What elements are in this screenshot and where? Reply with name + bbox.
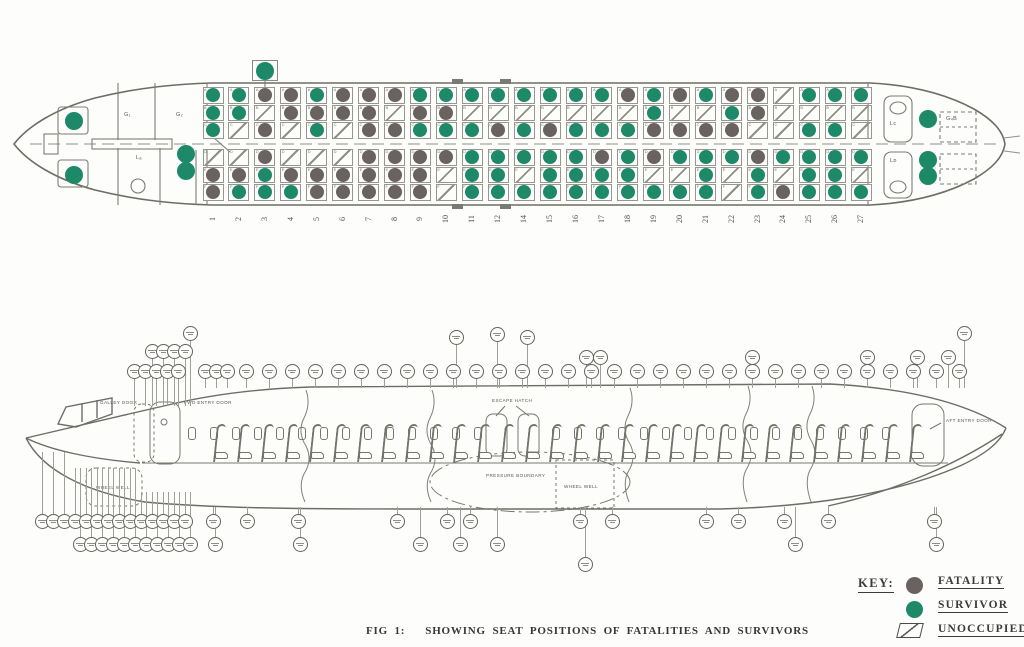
survivor-circle: [543, 168, 557, 182]
station-callout-circle: [814, 364, 829, 379]
seat-5F: F: [306, 184, 327, 201]
seat-8D: D: [384, 149, 405, 166]
row-number-20: 20: [675, 209, 685, 229]
seat-letter: B: [515, 105, 518, 110]
seat-27E: E: [851, 167, 872, 184]
seat-23E: E: [747, 167, 768, 184]
survivor-circle: [543, 150, 557, 164]
fwd-lav-toilet: [131, 179, 145, 193]
station-callout-circle: [929, 537, 944, 552]
survivor-circle: [751, 185, 765, 199]
callout-leader-line: [246, 379, 247, 388]
seat-3A: A: [254, 87, 275, 104]
callout-leader-line: [141, 492, 142, 514]
seat-letter: D: [593, 149, 596, 154]
survivor-circle: [206, 106, 220, 120]
callout-leader-line: [913, 379, 914, 388]
seat-letter: B: [282, 105, 285, 110]
seat-letter: E: [204, 167, 207, 172]
seat-2E: E: [228, 167, 249, 184]
seat-letter: C: [697, 122, 700, 127]
callout-leader-line: [179, 492, 180, 537]
fatality-circle: [751, 150, 765, 164]
station-callout-circle: [538, 364, 553, 379]
seat-letter: A: [204, 87, 207, 92]
seat-silhouette: [236, 424, 253, 463]
seat-1F: F: [203, 184, 224, 201]
station-callout-circle: [883, 364, 898, 379]
seat-letter: B: [386, 105, 389, 110]
seat-27B: B: [851, 105, 872, 122]
station-callout-circle: [490, 537, 505, 552]
seat-1D: D: [203, 149, 224, 166]
survivor-circle: [310, 88, 324, 102]
seat-letter: B: [749, 105, 752, 110]
station-callout-circle: [837, 364, 852, 379]
seat-26B: B: [825, 105, 846, 122]
survivor-circle: [491, 150, 505, 164]
seat-16D: D: [566, 149, 587, 166]
callout-leader-line: [828, 507, 829, 514]
fatality-circle: [388, 123, 402, 137]
station-callout-circle: [520, 330, 535, 345]
fatality-circle: [284, 168, 298, 182]
seat-letter: D: [800, 149, 803, 154]
aft-lav-left-toilet: [890, 102, 906, 114]
seat-letter: B: [437, 105, 440, 110]
callout-leader-line: [600, 365, 601, 388]
survivor-circle: [258, 185, 272, 199]
callout-leader-line: [190, 492, 191, 537]
seat-letter: A: [800, 87, 803, 92]
row-number-12: 12: [493, 209, 503, 229]
seat-silhouette: [740, 424, 757, 463]
callout-leader-line: [134, 379, 135, 406]
seat-letter: E: [308, 167, 311, 172]
seat-23B: B: [747, 105, 768, 122]
seat-silhouette: [212, 424, 229, 463]
survivor-circle: [258, 168, 272, 182]
survivor-circle: [284, 185, 298, 199]
seat-19A: A: [643, 87, 664, 104]
seat-letter: D: [749, 149, 752, 154]
callout-leader-line: [361, 379, 362, 388]
callout-leader-line: [784, 507, 785, 514]
seat-letter: D: [437, 149, 440, 154]
fatality-circle: [776, 185, 790, 199]
row-number-16: 16: [571, 209, 581, 229]
seat-8B: B: [384, 105, 405, 122]
seat-letter: C: [360, 122, 363, 127]
key-heading: KEY:: [858, 576, 894, 593]
seat-letter: A: [360, 87, 363, 92]
survivor-circle: [439, 123, 453, 137]
callout-leader-line: [936, 379, 937, 388]
survivor-circle: [621, 123, 635, 137]
fatality-circle: [751, 106, 765, 120]
fatality-circle: [336, 185, 350, 199]
seat-letter: E: [800, 167, 803, 172]
seat-letter: A: [437, 87, 440, 92]
fatality-circle: [388, 185, 402, 199]
seat-20D: D: [669, 149, 690, 166]
seat-7C: C: [358, 122, 379, 139]
survivor-circle: [802, 88, 816, 102]
station-callout-circle: [927, 514, 942, 529]
survivor-circle: [465, 150, 479, 164]
seat-2D: D: [228, 149, 249, 166]
seat-letter: F: [360, 184, 362, 189]
seat-16A: A: [566, 87, 587, 104]
aft-lav-right-toilet: [890, 181, 906, 193]
seat-26D: D: [825, 149, 846, 166]
seat-letter: B: [800, 105, 803, 110]
survivor-circle: [310, 123, 324, 137]
seat-4D: D: [280, 149, 301, 166]
callout-leader-line: [298, 507, 299, 514]
seat-letter: E: [334, 167, 337, 172]
seat-letter: E: [411, 167, 414, 172]
station-callout-circle: [821, 514, 836, 529]
seat-12B: B: [488, 105, 509, 122]
seat-24C: C: [773, 122, 794, 139]
survivor-circle: [802, 150, 816, 164]
seat-silhouette: [644, 424, 661, 463]
callout-leader-line: [185, 492, 186, 514]
cabin-window: [188, 427, 196, 440]
seat-letter: D: [282, 149, 285, 154]
seat-8C: C: [384, 122, 405, 139]
seat-10C: C: [436, 122, 457, 139]
survivor-circle: [465, 88, 479, 102]
seat-letter: A: [619, 87, 622, 92]
seat-letter: B: [541, 105, 544, 110]
seat-letter: C: [567, 122, 570, 127]
seat-letter: D: [515, 149, 518, 154]
survivor-circle: [465, 185, 479, 199]
seat-silhouette: [500, 424, 517, 463]
seat-letter: D: [489, 149, 492, 154]
seat-23F: F: [747, 184, 768, 201]
callout-leader-line: [130, 468, 131, 514]
station-callout-circle: [605, 514, 620, 529]
row-number-9: 9: [415, 209, 425, 229]
seat-letter: F: [437, 184, 439, 189]
row-number-21: 21: [701, 209, 711, 229]
station-callout-circle: [206, 514, 221, 529]
station-callout-circle: [354, 364, 369, 379]
seat-letter: C: [852, 122, 855, 127]
seat-letter: C: [411, 122, 414, 127]
seat-letter: E: [593, 167, 596, 172]
callout-leader-line: [890, 379, 891, 388]
callout-leader-line: [269, 379, 270, 388]
seat-letter: C: [774, 122, 777, 127]
fatality-circle: [362, 88, 376, 102]
seat-9B: B: [410, 105, 431, 122]
callout-leader-line: [821, 379, 822, 388]
seat-letter: A: [749, 87, 752, 92]
callout-leader-line: [119, 468, 120, 514]
seat-25A: A: [799, 87, 820, 104]
seat-letter: C: [463, 122, 466, 127]
row-number-11: 11: [467, 209, 477, 229]
survivor-circle: [751, 168, 765, 182]
aft-jumpseat-right-2-circle: [919, 167, 937, 185]
seat-21B: B: [695, 105, 716, 122]
seat-letter: C: [256, 122, 259, 127]
callout-leader-line: [612, 507, 613, 514]
station-callout-circle: [183, 537, 198, 552]
survivor-circle: [776, 150, 790, 164]
callout-leader-line: [75, 468, 76, 514]
seat-6C: C: [332, 122, 353, 139]
annotation-survivor-circle: [256, 62, 274, 80]
survivor-circle: [517, 88, 531, 102]
station-callout-circle: [788, 537, 803, 552]
seat-25B: B: [799, 105, 820, 122]
seat-letter: D: [308, 149, 311, 154]
station-callout-circle: [910, 350, 925, 365]
fatality-circle: [336, 88, 350, 102]
seat-19D: D: [643, 149, 664, 166]
seat-letter: E: [541, 167, 544, 172]
seat-9F: F: [410, 184, 431, 201]
seat-21C: C: [695, 122, 716, 139]
seat-letter: D: [619, 149, 622, 154]
station-callout-circle: [578, 557, 593, 572]
aft-entry-door-label: AFT ENTRY DOOR: [946, 418, 992, 423]
seat-6B: B: [332, 105, 353, 122]
station-callout-circle: [653, 364, 668, 379]
callout-leader-line: [156, 379, 157, 406]
callout-leader-line: [407, 379, 408, 388]
seat-letter: F: [774, 184, 776, 189]
survivor-circle: [595, 168, 609, 182]
callout-leader-line: [775, 379, 776, 388]
station-callout-circle: [952, 364, 967, 379]
fatality-circle: [413, 106, 427, 120]
seat-letter: D: [697, 149, 700, 154]
seat-letter: F: [386, 184, 388, 189]
callout-leader-line: [591, 379, 592, 388]
survivor-circle: [465, 123, 479, 137]
callout-leader-line: [614, 379, 615, 388]
callout-leader-line: [145, 379, 146, 406]
callout-leader-line: [585, 507, 586, 557]
station-callout-circle: [413, 537, 428, 552]
aft-lav-left-outline: [884, 96, 912, 142]
callout-leader-line: [174, 492, 175, 514]
callout-leader-line: [637, 379, 638, 388]
seat-letter: D: [360, 149, 363, 154]
seat-letter: E: [437, 167, 440, 172]
seat-letter: D: [463, 149, 466, 154]
seat-2C: C: [228, 122, 249, 139]
seat-letter: B: [774, 105, 777, 110]
seat-letter: E: [826, 167, 829, 172]
seat-letter: C: [282, 122, 285, 127]
survivor-circle: [828, 123, 842, 137]
station-callout-circle: [676, 364, 691, 379]
station-callout-circle: [240, 514, 255, 529]
fatality-circle: [699, 123, 713, 137]
survivor-circle: [232, 185, 246, 199]
seat-24E: E: [773, 167, 794, 184]
seat-letter: A: [697, 87, 700, 92]
seat-letter: E: [852, 167, 855, 172]
station-callout-circle: [745, 350, 760, 365]
survivor-circle: [647, 106, 661, 120]
fatality-circle: [673, 123, 687, 137]
seat-12C: C: [488, 122, 509, 139]
seat-11B: B: [462, 105, 483, 122]
seat-2B: B: [228, 105, 249, 122]
callout-leader-line: [384, 379, 385, 388]
seat-8E: E: [384, 167, 405, 184]
seat-silhouette: [716, 424, 733, 463]
row-number-10: 10: [441, 209, 451, 229]
seat-silhouette: [404, 424, 421, 463]
seat-4A: A: [280, 87, 301, 104]
seat-9C: C: [410, 122, 431, 139]
fatality-circle: [439, 150, 453, 164]
station-callout-circle: [515, 364, 530, 379]
row-number-17: 17: [597, 209, 607, 229]
seat-21E: E: [695, 167, 716, 184]
seat-letter: B: [463, 105, 466, 110]
survivor-circle: [517, 185, 531, 199]
callout-leader-line: [545, 379, 546, 388]
station-callout-circle: [453, 537, 468, 552]
callout-leader-line: [580, 507, 581, 514]
station-callout-circle: [722, 364, 737, 379]
seat-letter: C: [437, 122, 440, 127]
seat-17B: B: [591, 105, 612, 122]
seat-silhouette: [692, 424, 709, 463]
survivor-circle: [725, 150, 739, 164]
station-callout-circle: [463, 514, 478, 529]
survivor-circle: [647, 185, 661, 199]
seat-letter: D: [567, 149, 570, 154]
overwing-exit-mark: [452, 204, 463, 209]
station-callout-circle: [400, 364, 415, 379]
seat-silhouette: [332, 424, 349, 463]
seat-letter: D: [774, 149, 777, 154]
seat-3D: D: [254, 149, 275, 166]
station-callout-circle: [731, 514, 746, 529]
fatality-circle: [258, 123, 272, 137]
fatality-circle: [362, 123, 376, 137]
station-callout-circle: [446, 364, 461, 379]
station-callout-circle: [178, 344, 193, 359]
seat-9A: A: [410, 87, 431, 104]
survivor-circle: [647, 88, 661, 102]
fatality-circle: [258, 150, 272, 164]
seat-letter: C: [826, 122, 829, 127]
row-number-4: 4: [286, 209, 296, 229]
seat-21A: A: [695, 87, 716, 104]
seat-letter: E: [515, 167, 518, 172]
survivor-circle: [491, 168, 505, 182]
survivor-circle: [854, 150, 868, 164]
seat-23A: A: [747, 87, 768, 104]
seat-3E: E: [254, 167, 275, 184]
seat-24F: F: [773, 184, 794, 201]
callout-leader-line: [167, 379, 168, 406]
seat-25F: F: [799, 184, 820, 201]
seat-23C: C: [747, 122, 768, 139]
seat-letter: A: [230, 87, 233, 92]
seat-18E: E: [617, 167, 638, 184]
fatality-circle: [310, 168, 324, 182]
callout-leader-line: [292, 379, 293, 388]
seat-1B: B: [203, 105, 224, 122]
seat-letter: F: [645, 184, 647, 189]
seat-19B: B: [643, 105, 664, 122]
seat-letter: C: [593, 122, 596, 127]
station-callout-circle: [941, 350, 956, 365]
seat-letter: E: [282, 167, 285, 172]
seat-letter: B: [826, 105, 829, 110]
station-callout-circle: [573, 514, 588, 529]
fatality-circle: [439, 106, 453, 120]
seat-15B: B: [540, 105, 561, 122]
seat-letter: F: [282, 184, 284, 189]
seat-16C: C: [566, 122, 587, 139]
seat-9E: E: [410, 167, 431, 184]
cockpit-first-officer-circle: [65, 166, 83, 184]
fatality-circle: [647, 150, 661, 164]
seat-17A: A: [591, 87, 612, 104]
seat-letter: E: [386, 167, 389, 172]
seat-20B: B: [669, 105, 690, 122]
cockpit-captain-circle: [65, 112, 83, 130]
seat-letter: C: [515, 122, 518, 127]
station-callout-circle: [239, 364, 254, 379]
fatality-circle: [491, 123, 505, 137]
fatality-circle: [621, 88, 635, 102]
seat-22F: F: [721, 184, 742, 201]
seat-silhouette: [380, 424, 397, 463]
seat-letter: C: [541, 122, 544, 127]
seat-26C: C: [825, 122, 846, 139]
seat-letter: F: [411, 184, 413, 189]
row-number-5: 5: [312, 209, 322, 229]
station-callout-circle: [390, 514, 405, 529]
station-callout-circle: [777, 514, 792, 529]
seat-letter: F: [749, 184, 751, 189]
fwd-jumpseat-1-circle: [177, 145, 195, 163]
seat-10F: F: [436, 184, 457, 201]
seat-16E: E: [566, 167, 587, 184]
station-callout-circle: [630, 364, 645, 379]
survivor-circle: [569, 168, 583, 182]
seat-27A: A: [851, 87, 872, 104]
fatality-circle: [310, 106, 324, 120]
seat-letter: F: [256, 184, 258, 189]
seat-21F: F: [695, 184, 716, 201]
survivor-circle: [543, 185, 557, 199]
callout-leader-line: [795, 507, 796, 537]
seat-letter: B: [360, 105, 363, 110]
seat-5B: B: [306, 105, 327, 122]
survivor-circle: [621, 150, 635, 164]
seat-letter: B: [230, 105, 233, 110]
seat-letter: E: [256, 167, 259, 172]
seat-letter: E: [645, 167, 648, 172]
seat-25D: D: [799, 149, 820, 166]
